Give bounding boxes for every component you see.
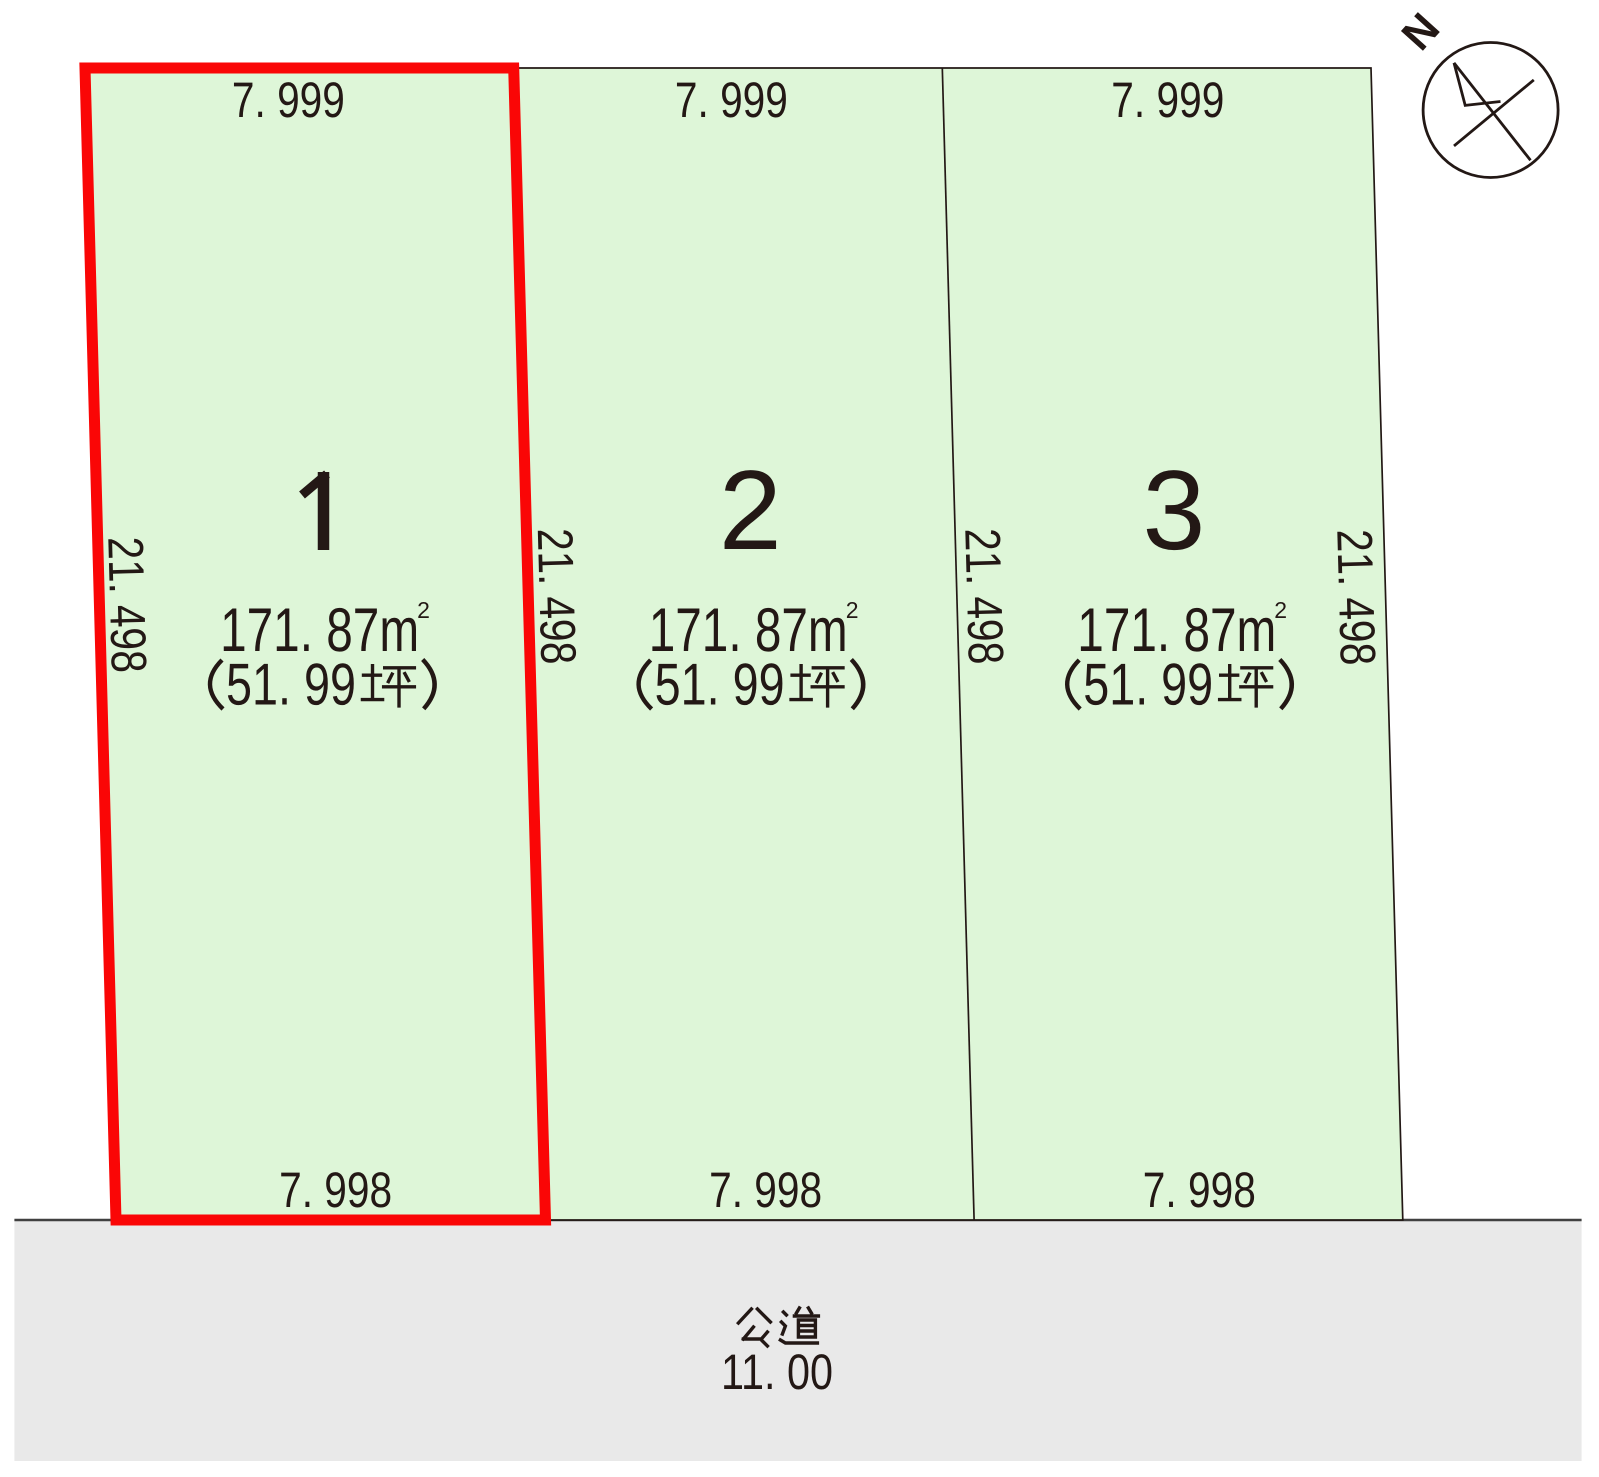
svg-text:7. 998: 7. 998	[709, 1162, 822, 1218]
svg-text:7. 998: 7. 998	[279, 1162, 392, 1218]
svg-text:21. 498: 21. 498	[527, 528, 587, 665]
svg-text:7. 998: 7. 998	[1143, 1162, 1256, 1218]
svg-text:11. 00: 11. 00	[721, 1344, 833, 1400]
svg-text:21. 498: 21. 498	[954, 528, 1014, 665]
svg-text:51. 99: 51. 99	[655, 652, 785, 718]
svg-text:21. 498: 21. 498	[1326, 529, 1386, 666]
svg-text:51. 99: 51. 99	[1083, 652, 1213, 718]
svg-text:3: 3	[1142, 447, 1205, 573]
svg-text:21. 498: 21. 498	[97, 536, 157, 673]
svg-text:2: 2	[846, 597, 859, 623]
svg-text:2: 2	[417, 597, 430, 623]
svg-text:7. 999: 7. 999	[232, 72, 345, 128]
svg-text:2: 2	[1274, 597, 1287, 623]
svg-text:7. 999: 7. 999	[1111, 72, 1224, 128]
svg-text:7. 999: 7. 999	[675, 72, 788, 128]
svg-text:51. 99: 51. 99	[226, 652, 356, 718]
svg-text:2: 2	[719, 447, 782, 573]
